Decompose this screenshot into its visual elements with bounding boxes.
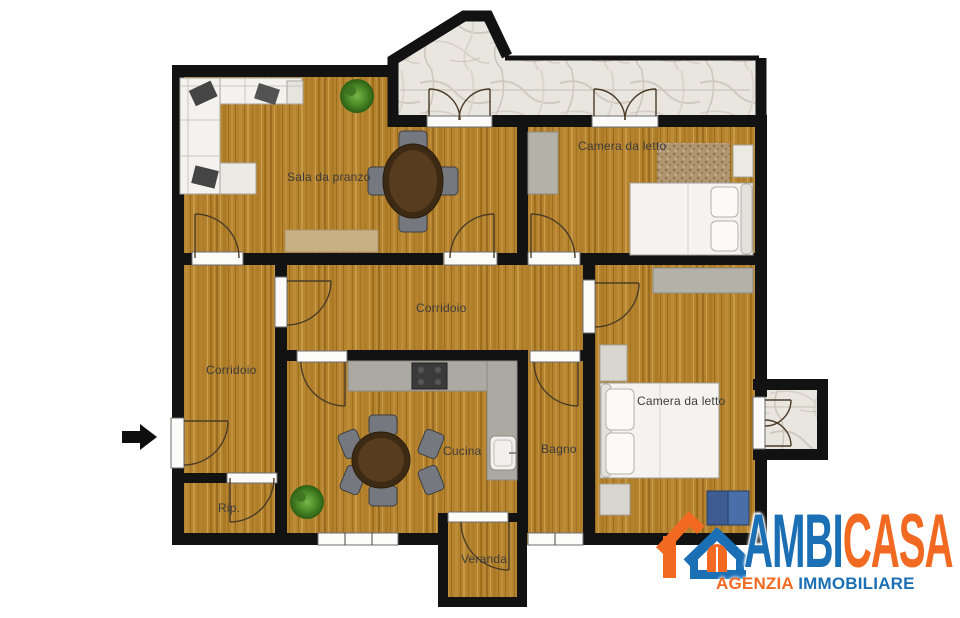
entrance-arrow-icon (122, 424, 157, 450)
room-label-camera-da-letto-1: Camera da letto (578, 139, 666, 153)
room-label-sala-da-pranzo: Sala da pranzo (287, 170, 371, 184)
room-label-corridoio-2: Corridoio (206, 363, 257, 377)
room-label-corridoio-1: Corridoio (416, 301, 467, 315)
pillow (606, 389, 634, 430)
logo-tagline: AGENZIA IMMOBILIARE (716, 574, 915, 594)
plant (340, 79, 374, 113)
entry-door-threshold (171, 418, 184, 468)
wardrobe (653, 268, 753, 293)
logo-tagline-part2: IMMOBILIARE (798, 574, 914, 593)
nightstand (733, 145, 753, 177)
stove (412, 363, 447, 389)
logo-name-part2: CASA (843, 499, 953, 584)
floorplan-image: Sala da pranzo Camera da letto Corridoio… (0, 0, 960, 618)
logo-name: AMBICASA (744, 506, 953, 578)
room-label-veranda: Veranda (461, 552, 507, 566)
agency-logo: AMBICASA AGENZIA IMMOBILIARE (648, 502, 960, 602)
wardrobe (528, 132, 558, 194)
logo-tagline-part1: AGENZIA (716, 574, 793, 593)
plant (290, 485, 324, 519)
room-label-bagno: Bagno (541, 442, 577, 456)
room-label-cucina: Cucina (443, 444, 482, 458)
logo-name-part1: AMBI (744, 499, 843, 584)
nightstand (600, 484, 630, 515)
room-label-camera-da-letto-2: Camera da letto (637, 394, 725, 408)
rug (657, 143, 730, 183)
pillow (711, 187, 738, 217)
pillow (606, 433, 634, 474)
nightstand (600, 345, 627, 381)
room-label-ripostiglio: Rip. (218, 501, 240, 515)
rug (285, 230, 378, 252)
kitchen-window (318, 533, 398, 545)
pillow (711, 221, 738, 251)
